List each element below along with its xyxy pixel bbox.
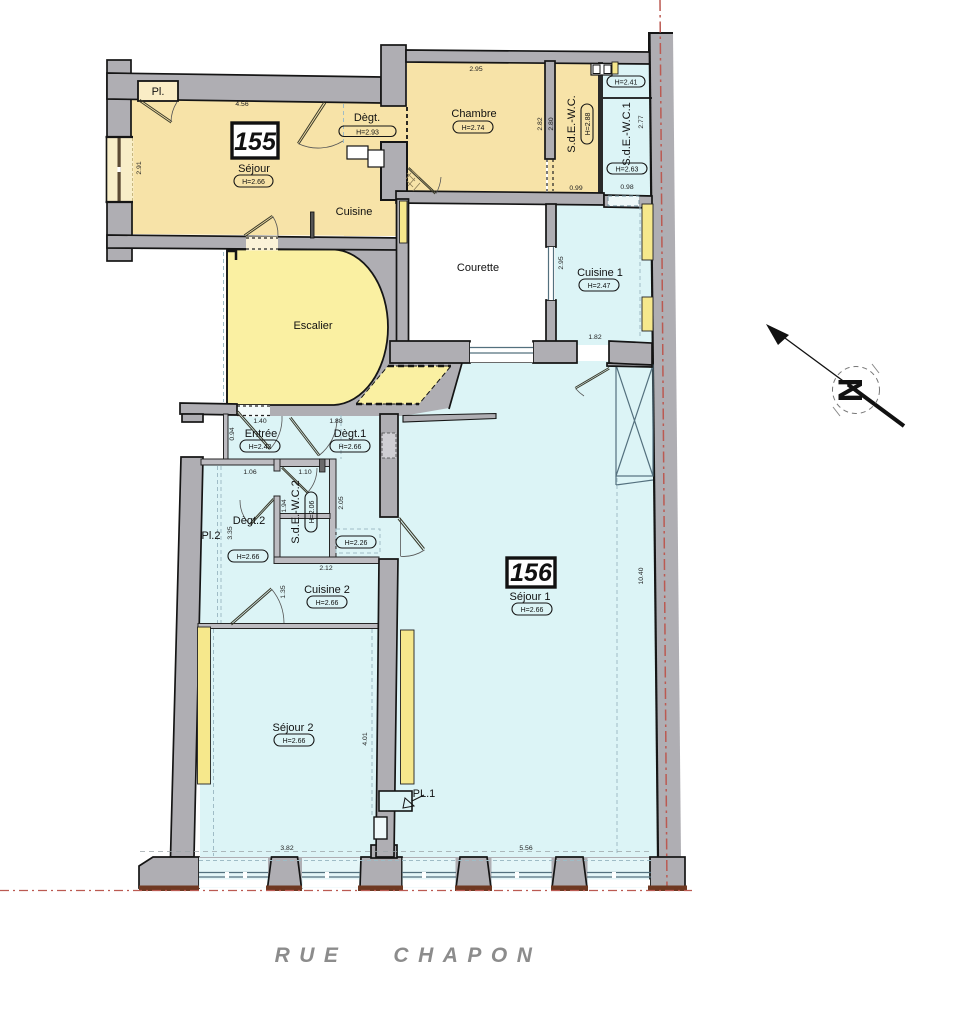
svg-text:4.01: 4.01 xyxy=(362,732,369,745)
svg-text:H=2.66: H=2.66 xyxy=(283,738,306,745)
svg-text:H=2.74: H=2.74 xyxy=(462,125,485,132)
svg-text:2.91: 2.91 xyxy=(136,161,143,174)
svg-text:RUE CHAPON: RUE CHAPON xyxy=(275,944,542,967)
svg-text:Cuisine 1: Cuisine 1 xyxy=(577,267,623,279)
svg-text:N: N xyxy=(832,378,870,403)
svg-text:2.80: 2.80 xyxy=(548,117,555,130)
svg-text:4.56: 4.56 xyxy=(235,101,248,108)
svg-text:1.40: 1.40 xyxy=(253,418,266,425)
svg-text:2.12: 2.12 xyxy=(319,565,332,572)
svg-text:H=2.66: H=2.66 xyxy=(316,600,339,607)
svg-text:1.94: 1.94 xyxy=(281,499,288,512)
svg-text:Entrée: Entrée xyxy=(245,428,277,440)
svg-text:PL.1: PL.1 xyxy=(413,788,436,800)
svg-text:156: 156 xyxy=(510,559,553,587)
svg-text:H=2.93: H=2.93 xyxy=(356,130,379,137)
svg-text:Séjour 1: Séjour 1 xyxy=(510,591,551,603)
svg-text:2.77: 2.77 xyxy=(638,115,645,128)
svg-text:H=2.66: H=2.66 xyxy=(339,444,362,451)
svg-text:H=2.66: H=2.66 xyxy=(242,179,265,186)
svg-text:Cuisine: Cuisine xyxy=(336,206,373,218)
svg-text:Pl.2: Pl.2 xyxy=(202,530,221,542)
svg-text:Dègt.1: Dègt.1 xyxy=(334,428,366,440)
svg-text:0.98: 0.98 xyxy=(620,184,633,191)
svg-text:10.40: 10.40 xyxy=(638,567,645,584)
svg-text:2.05: 2.05 xyxy=(338,496,345,509)
svg-text:Escalier: Escalier xyxy=(293,320,332,332)
svg-text:H=2.26: H=2.26 xyxy=(345,540,368,547)
svg-text:Dègt.2: Dègt.2 xyxy=(233,515,265,527)
svg-text:0.94: 0.94 xyxy=(229,427,236,440)
svg-text:1.10: 1.10 xyxy=(298,469,311,476)
svg-text:H=2.88: H=2.88 xyxy=(585,113,592,136)
svg-text:Courette: Courette xyxy=(457,262,499,274)
svg-text:H=2.06: H=2.06 xyxy=(309,501,316,524)
svg-text:Séjour: Séjour xyxy=(238,163,270,175)
svg-text:3.82: 3.82 xyxy=(280,845,293,852)
svg-text:Pl.: Pl. xyxy=(152,86,165,98)
svg-text:S.d.E.-W.C.: S.d.E.-W.C. xyxy=(566,95,578,152)
svg-text:1.88: 1.88 xyxy=(329,418,342,425)
svg-text:1.35: 1.35 xyxy=(280,585,287,598)
svg-text:H=2.66: H=2.66 xyxy=(521,607,544,614)
svg-text:1.82: 1.82 xyxy=(588,334,601,341)
svg-text:H=2.66: H=2.66 xyxy=(237,554,260,561)
svg-text:155: 155 xyxy=(234,128,277,156)
svg-text:H=2.47: H=2.47 xyxy=(588,283,611,290)
svg-text:H=2.41: H=2.41 xyxy=(615,80,638,87)
svg-text:S.d.E.-W.C.1: S.d.E.-W.C.1 xyxy=(621,102,633,166)
svg-text:Cuisine 2: Cuisine 2 xyxy=(304,584,350,596)
svg-text:3.35: 3.35 xyxy=(227,526,234,539)
svg-text:Séjour 2: Séjour 2 xyxy=(273,722,314,734)
svg-text:2.82: 2.82 xyxy=(537,117,544,130)
svg-text:0.99: 0.99 xyxy=(569,185,582,192)
svg-text:1.06: 1.06 xyxy=(243,469,256,476)
svg-text:S.d.E.-W.C.2: S.d.E.-W.C.2 xyxy=(290,480,302,544)
svg-text:H=2.63: H=2.63 xyxy=(616,167,639,174)
svg-text:5.56: 5.56 xyxy=(519,845,532,852)
svg-text:H=2.42: H=2.42 xyxy=(249,444,272,451)
svg-text:2.95: 2.95 xyxy=(469,66,482,73)
svg-text:Chambre: Chambre xyxy=(451,108,496,120)
svg-text:2.95: 2.95 xyxy=(558,256,565,269)
svg-text:Dègt.: Dègt. xyxy=(354,112,380,124)
